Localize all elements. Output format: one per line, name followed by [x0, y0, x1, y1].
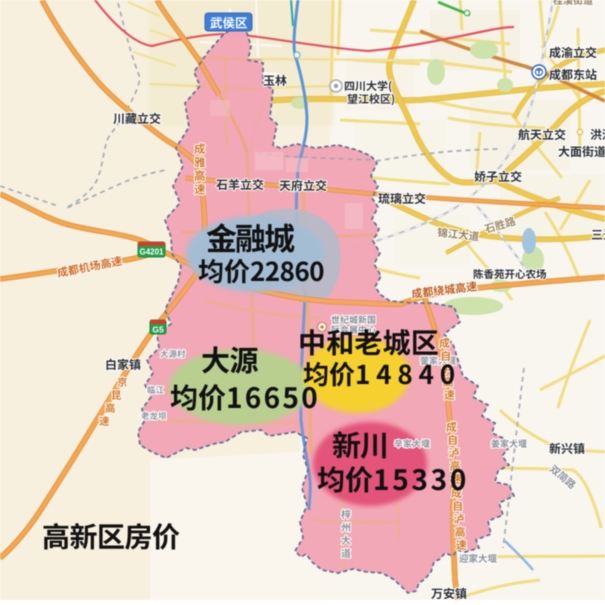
svg-text:G4201: G4201	[139, 248, 164, 257]
svg-text:G5: G5	[152, 325, 164, 335]
